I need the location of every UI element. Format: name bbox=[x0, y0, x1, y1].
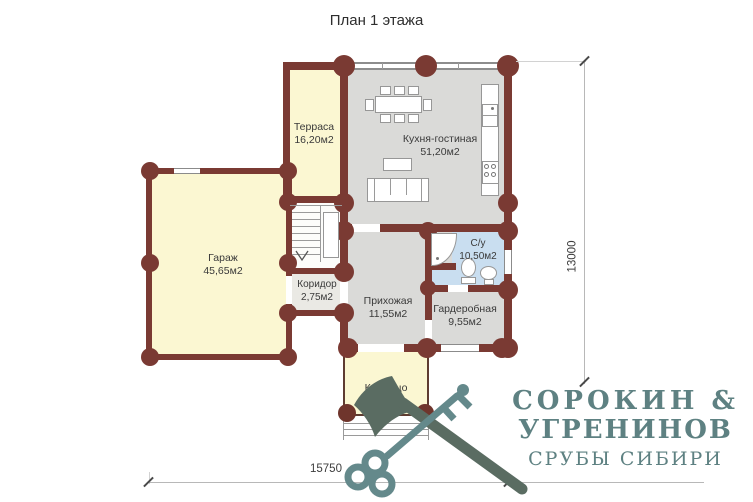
sofa-cushion-divider bbox=[406, 179, 407, 195]
log-joint bbox=[420, 280, 436, 296]
toilet-tank bbox=[461, 277, 476, 284]
extension-line bbox=[516, 61, 586, 62]
stair-direction-arrow bbox=[294, 250, 310, 262]
washbasin-pedestal bbox=[484, 279, 494, 285]
sink-divider bbox=[483, 115, 497, 116]
log-joint bbox=[279, 162, 297, 180]
chair bbox=[394, 86, 405, 95]
log-joint bbox=[492, 338, 512, 358]
room-label-corridor: Коридор 2,75м2 bbox=[287, 279, 347, 304]
coffee-table bbox=[383, 158, 412, 171]
room-name: Кухня-гостиная bbox=[385, 133, 495, 146]
log-joint bbox=[497, 55, 519, 77]
logo-line-2: УГРЕНИНОВ bbox=[498, 416, 753, 445]
room-area: 51,20м2 bbox=[385, 146, 495, 159]
dimension-label-vertical: 13000 bbox=[567, 226, 580, 288]
logo-line-1: СОРОКИН & bbox=[498, 387, 753, 416]
room-name: Гараж bbox=[163, 252, 283, 265]
room-label-bathroom: С/у 10,50м2 bbox=[450, 238, 506, 263]
logo-line-3: СРУБЫ СИБИРИ bbox=[498, 448, 753, 471]
garage-window bbox=[174, 168, 200, 174]
room-area: 11,55м2 bbox=[348, 308, 428, 321]
entrance-door-opening bbox=[358, 344, 404, 352]
room-area: 16,20м2 bbox=[284, 134, 344, 147]
stove-burner bbox=[484, 172, 489, 177]
floor-plan-page: План 1 этажа bbox=[0, 0, 753, 502]
log-joint bbox=[415, 55, 437, 77]
room-area: 10,50м2 bbox=[450, 251, 506, 264]
room-area: 45,65м2 bbox=[163, 265, 283, 278]
log-joint bbox=[334, 193, 354, 213]
sofa-armrest bbox=[421, 179, 422, 201]
dimension-line-vertical bbox=[584, 62, 585, 384]
room-name: Коридор bbox=[287, 279, 347, 292]
room-name: Терраса bbox=[284, 121, 344, 134]
chair bbox=[365, 99, 374, 111]
sofa bbox=[367, 178, 429, 202]
faucet-dot bbox=[491, 107, 494, 110]
stair-landing bbox=[323, 212, 339, 258]
room-label-wardrobe: Гардеробная 9,55м2 bbox=[424, 303, 506, 329]
log-joint bbox=[141, 254, 159, 272]
room-label-terrace: Терраса 16,20м2 bbox=[284, 121, 344, 147]
chair bbox=[408, 114, 419, 123]
stove-burner bbox=[491, 164, 496, 169]
log-joint bbox=[279, 304, 297, 322]
door-opening-kitchen-hall bbox=[352, 224, 380, 232]
log-joint bbox=[417, 338, 437, 358]
sofa-cushion-divider bbox=[390, 179, 391, 195]
dining-table bbox=[375, 96, 422, 113]
wall bbox=[146, 168, 290, 174]
page-title: План 1 этажа bbox=[0, 12, 753, 29]
glazing-mullion bbox=[382, 63, 383, 69]
room-name: С/у bbox=[450, 238, 506, 251]
log-joint bbox=[141, 348, 159, 366]
room-label-garage: Гараж 45,65м2 bbox=[163, 252, 283, 278]
chair bbox=[380, 114, 391, 123]
washbasin bbox=[480, 266, 497, 280]
logo-text: СОРОКИН & УГРЕНИНОВ СРУБЫ СИБИРИ bbox=[498, 387, 753, 471]
room-label-kitchen: Кухня-гостиная 51,20м2 bbox=[385, 133, 495, 159]
wall bbox=[146, 354, 292, 360]
log-joint bbox=[498, 280, 518, 300]
glazing-mullion bbox=[458, 63, 459, 69]
log-joint bbox=[498, 193, 518, 213]
log-joint bbox=[141, 162, 159, 180]
hall-floor bbox=[346, 230, 427, 346]
room-name: Гардеробная bbox=[424, 303, 506, 316]
sofa-armrest bbox=[374, 179, 375, 201]
room-area: 2,75м2 bbox=[287, 292, 347, 305]
log-joint bbox=[333, 55, 355, 77]
log-joint bbox=[279, 348, 297, 366]
door-opening-bathroom bbox=[448, 285, 468, 292]
stair-divider bbox=[320, 205, 321, 262]
chair bbox=[380, 86, 391, 95]
chair bbox=[408, 86, 419, 95]
chair bbox=[423, 99, 432, 111]
bath-drain bbox=[436, 257, 439, 260]
stove-burner bbox=[491, 172, 496, 177]
wardrobe-window bbox=[441, 344, 479, 352]
log-joint bbox=[338, 338, 358, 358]
room-area: 9,55м2 bbox=[424, 316, 506, 329]
room-name: Прихожая bbox=[348, 295, 428, 308]
room-label-hall: Прихожая 11,55м2 bbox=[348, 295, 428, 321]
stove-burner bbox=[484, 164, 489, 169]
chair bbox=[394, 114, 405, 123]
